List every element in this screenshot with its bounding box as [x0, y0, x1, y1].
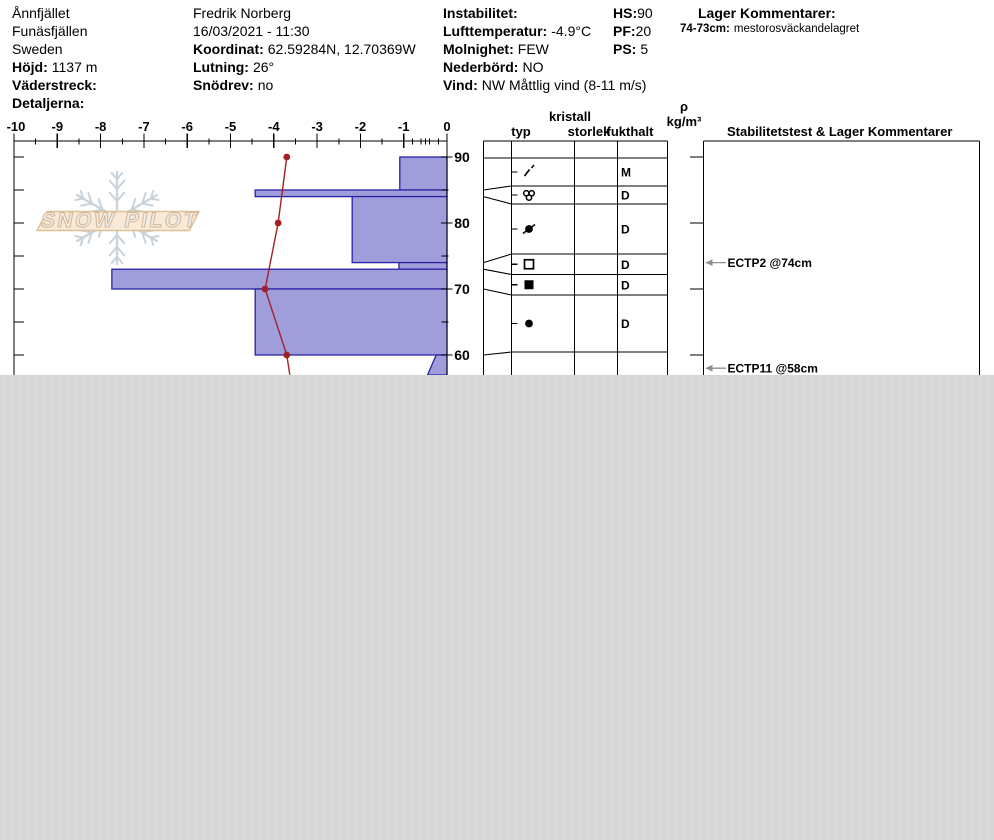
stability-test-label: ECTP11 @58cm: [728, 362, 818, 376]
hardness-bar: [352, 197, 447, 263]
hardness-bars: [112, 157, 447, 375]
moisture-code: D: [621, 317, 630, 331]
temp-axis-tick-label: -5: [225, 119, 237, 134]
grain-symbol-hollow-square: [525, 260, 534, 269]
stability-test-label: ECTP2 @74cm: [728, 256, 812, 270]
temp-axis-tick-label: -1: [398, 119, 410, 134]
stability-test-callout: ECTP2 @74cm: [706, 256, 812, 270]
empty-canvas-area: [0, 375, 994, 840]
temp-axis-tick-label: -7: [138, 119, 150, 134]
moisture-code: D: [621, 189, 630, 203]
snowpilot-watermark-banner: SNOW PILOT: [37, 209, 201, 232]
temp-axis-tick-label: -6: [181, 119, 193, 134]
hardness-bar: [399, 263, 447, 270]
column-header-moisture: fukthalt: [607, 124, 654, 139]
temperature-point: [283, 154, 290, 161]
moisture-code: D: [621, 278, 630, 292]
depth-tick-label: 80: [454, 215, 470, 231]
temperature-point: [283, 352, 290, 359]
grain-symbols: MDDDDD: [512, 165, 632, 331]
grain-symbol-filled-square: [525, 280, 534, 289]
column-header-density-symbol: ρ: [680, 99, 688, 114]
hardness-bar: [255, 190, 447, 197]
hardness-bar: [400, 157, 447, 190]
depth-tick-label: 60: [454, 347, 470, 363]
depth-tick-label: 70: [454, 281, 470, 297]
snowpilot-watermark-text: SNOW PILOT: [39, 209, 201, 232]
snowpilot-profile-page: Ånnfjället Funäsfjällen Sweden Höjd:1137…: [0, 0, 994, 840]
moisture-code: D: [621, 258, 630, 272]
depth-tick-label: 90: [454, 149, 470, 165]
temp-axis-tick-label: -4: [268, 119, 280, 134]
temperature-point: [275, 220, 282, 227]
grain-symbol-slash: [525, 165, 535, 176]
column-header-crystal-size: storlek: [568, 124, 611, 139]
grain-symbol-filled-circle-slash: [523, 225, 535, 234]
temperature-point: [262, 286, 269, 293]
temp-axis-tick-label: 0: [443, 119, 450, 134]
temp-axis-tick-label: -8: [95, 119, 107, 134]
temperature-axis: -10-9-8-7-6-5-4-3-2-10: [7, 119, 451, 148]
column-header-crystal-line1: kristall: [549, 109, 591, 124]
hardness-bar: [428, 355, 447, 375]
moisture-code: D: [621, 223, 630, 237]
column-header-grain-type: typ: [511, 124, 531, 139]
grain-symbol-circle-cluster: [524, 191, 535, 201]
grain-symbol-filled-circle: [525, 320, 533, 328]
temp-axis-tick-label: -10: [7, 119, 26, 134]
temp-axis-tick-label: -2: [355, 119, 367, 134]
layer-table-grid: [484, 141, 668, 375]
stability-test-callout: ECTP11 @58cm: [706, 362, 818, 376]
temp-axis-tick-label: -9: [52, 119, 64, 134]
temp-axis-tick-label: -3: [311, 119, 323, 134]
hardness-bar: [112, 269, 447, 289]
moisture-code: M: [621, 166, 631, 180]
column-header-stability-tests: Stabilitetstest & Lager Kommentarer: [727, 124, 952, 139]
column-header-density-unit: kg/m³: [667, 114, 702, 129]
